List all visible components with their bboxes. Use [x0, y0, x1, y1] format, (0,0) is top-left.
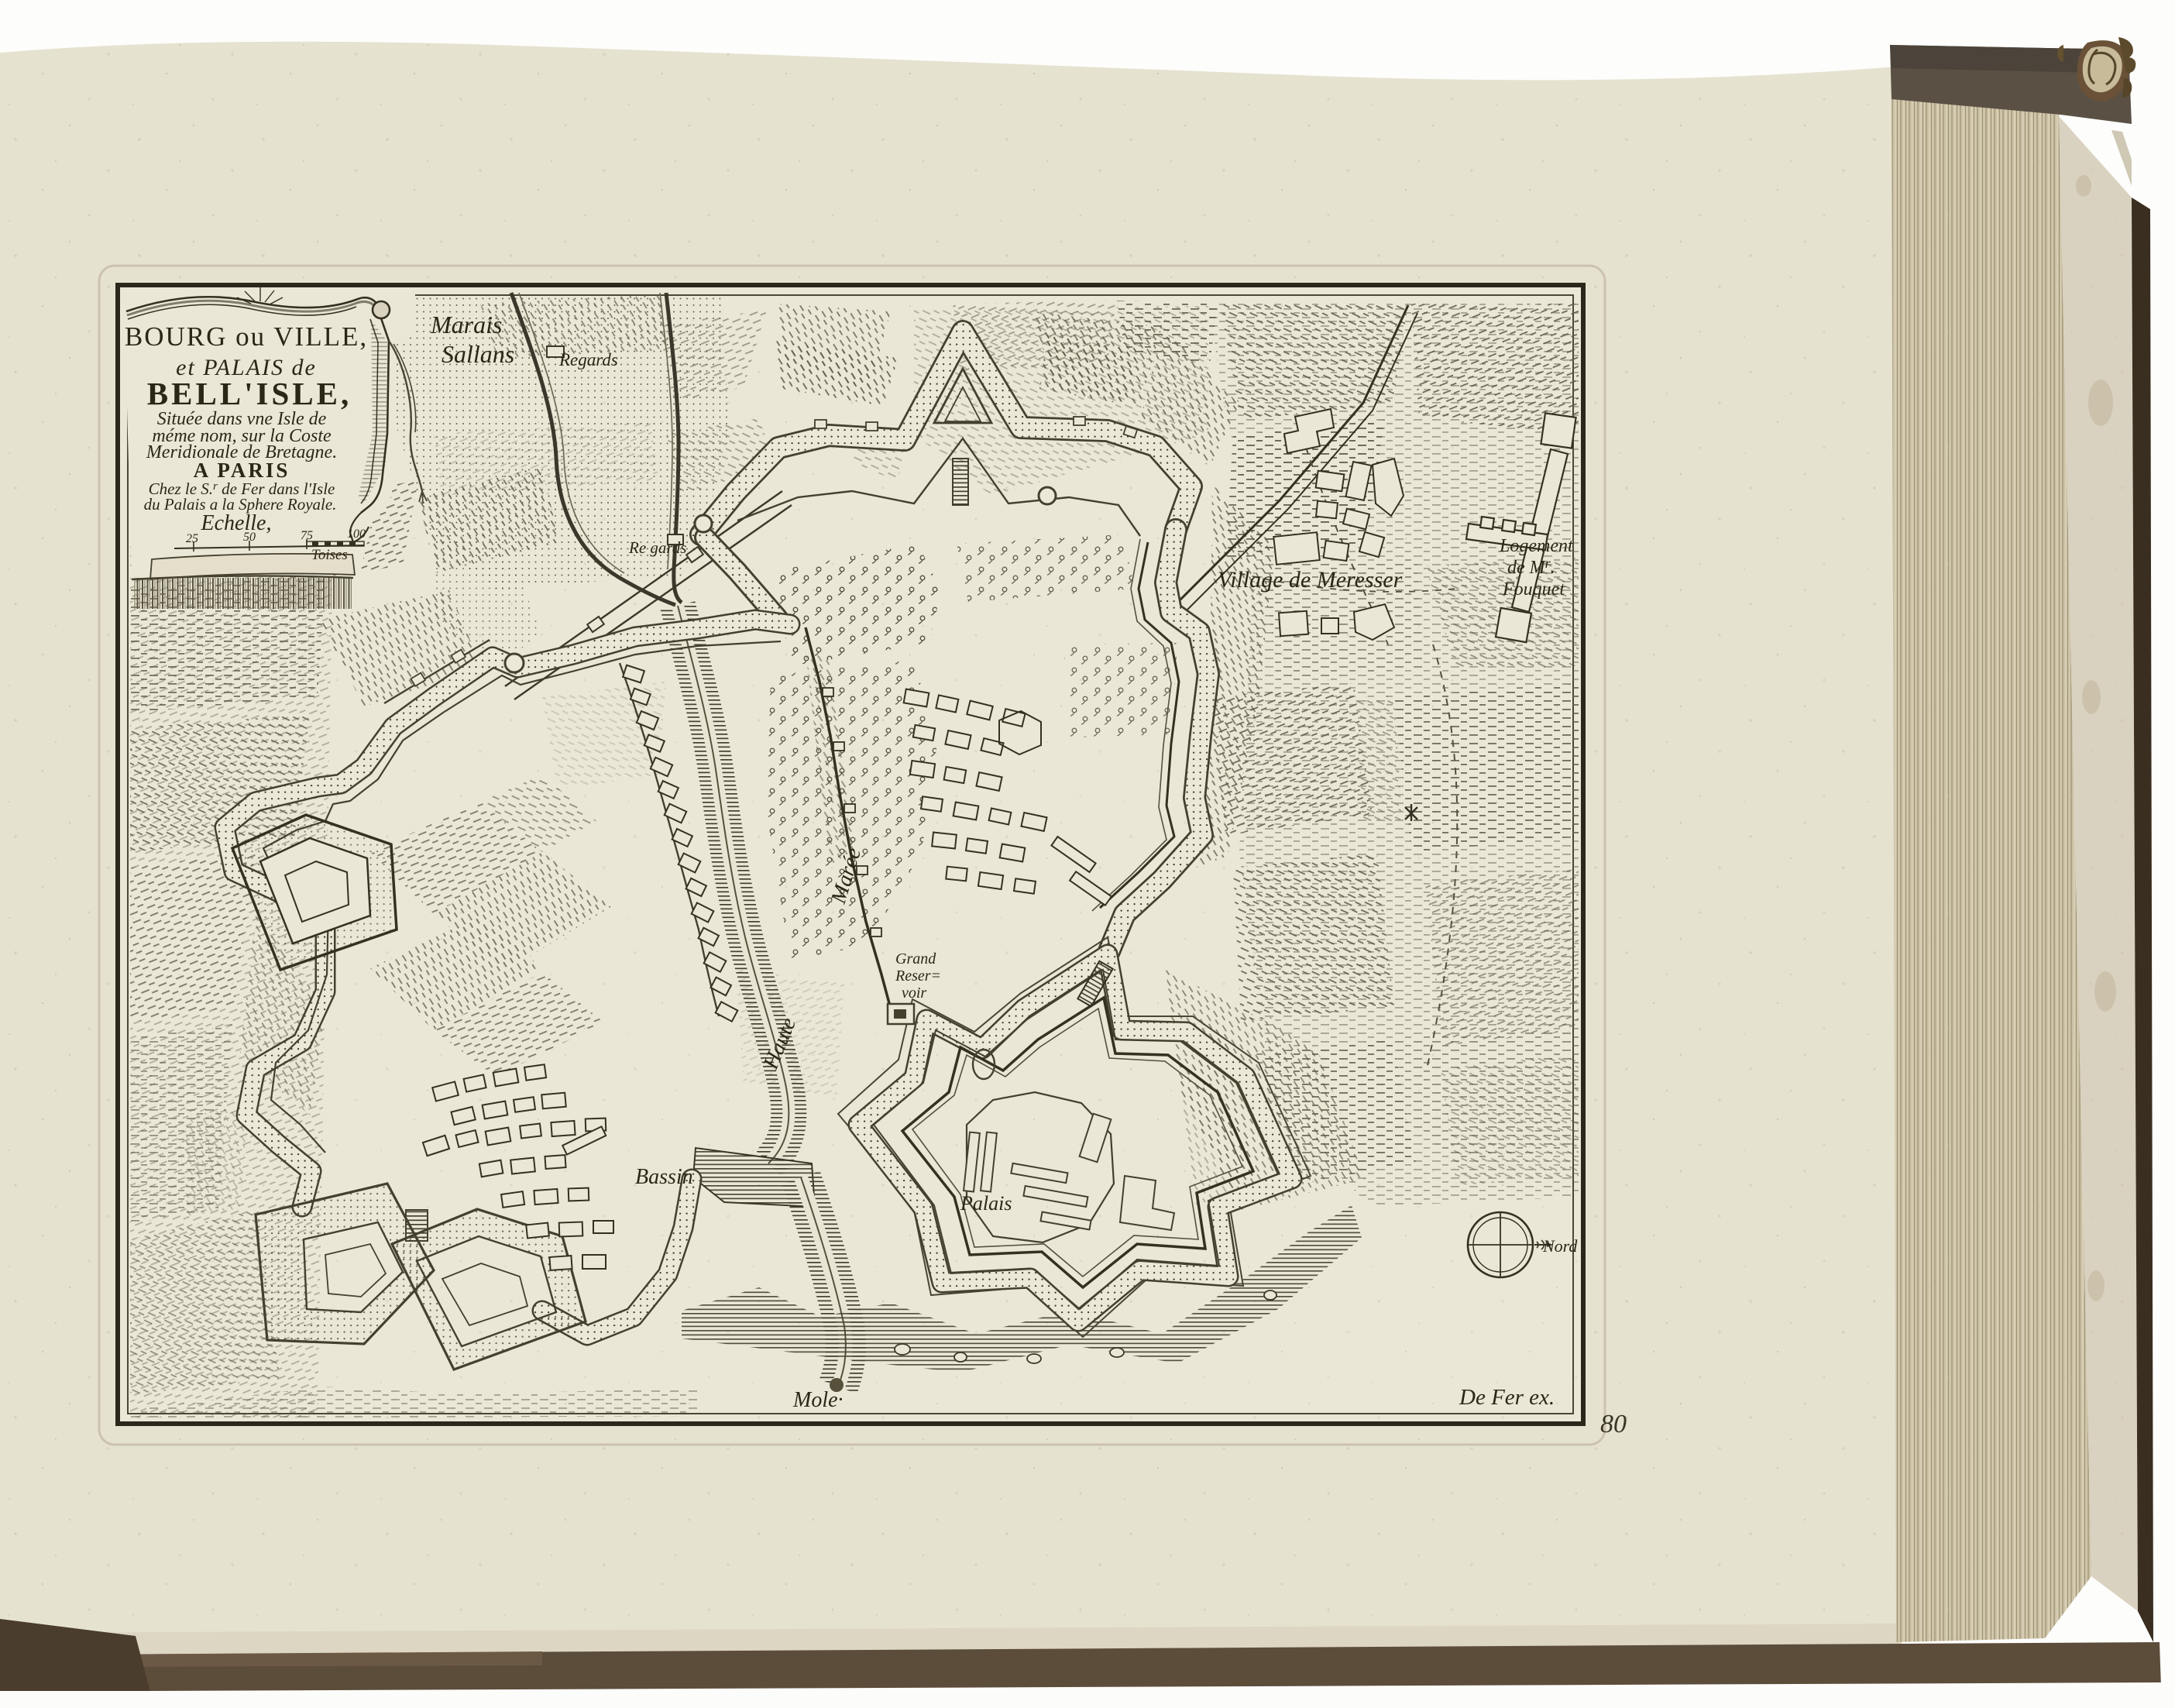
svg-text:Grand: Grand — [895, 950, 936, 967]
svg-text:Mole·: Mole· — [792, 1388, 844, 1412]
svg-text:De Fer ex.: De Fer ex. — [1459, 1385, 1555, 1410]
svg-text:BELL'ISLE,: BELL'ISLE, — [147, 376, 352, 411]
svg-text:Reser=: Reser= — [895, 967, 941, 985]
svg-text:Nord: Nord — [1542, 1236, 1578, 1256]
svg-text:Echelle,: Echelle, — [201, 511, 272, 535]
svg-text:BOURG ou VILLE,: BOURG ou VILLE, — [125, 321, 368, 352]
svg-text:25: 25 — [186, 532, 198, 545]
svg-text:100: 100 — [347, 528, 366, 541]
svg-text:Village de Meresser: Village de Meresser — [1218, 567, 1403, 593]
svg-text:Sallans: Sallans — [442, 340, 514, 368]
svg-text:voir: voir — [902, 985, 926, 1002]
svg-text:Marais: Marais — [430, 311, 502, 339]
svg-text:Palais: Palais — [960, 1192, 1012, 1215]
svg-text:Bassin: Bassin — [635, 1165, 693, 1189]
svg-text:80: 80 — [1600, 1410, 1627, 1438]
svg-text:Fouquet: Fouquet — [1502, 579, 1565, 600]
svg-text:A PARIS: A PARIS — [194, 459, 290, 482]
svg-text:Regards: Regards — [558, 350, 618, 369]
svg-text:Re gards: Re gards — [628, 538, 686, 557]
svg-text:Toises: Toises — [311, 547, 348, 563]
svg-text:Logement: Logement — [1499, 536, 1574, 556]
